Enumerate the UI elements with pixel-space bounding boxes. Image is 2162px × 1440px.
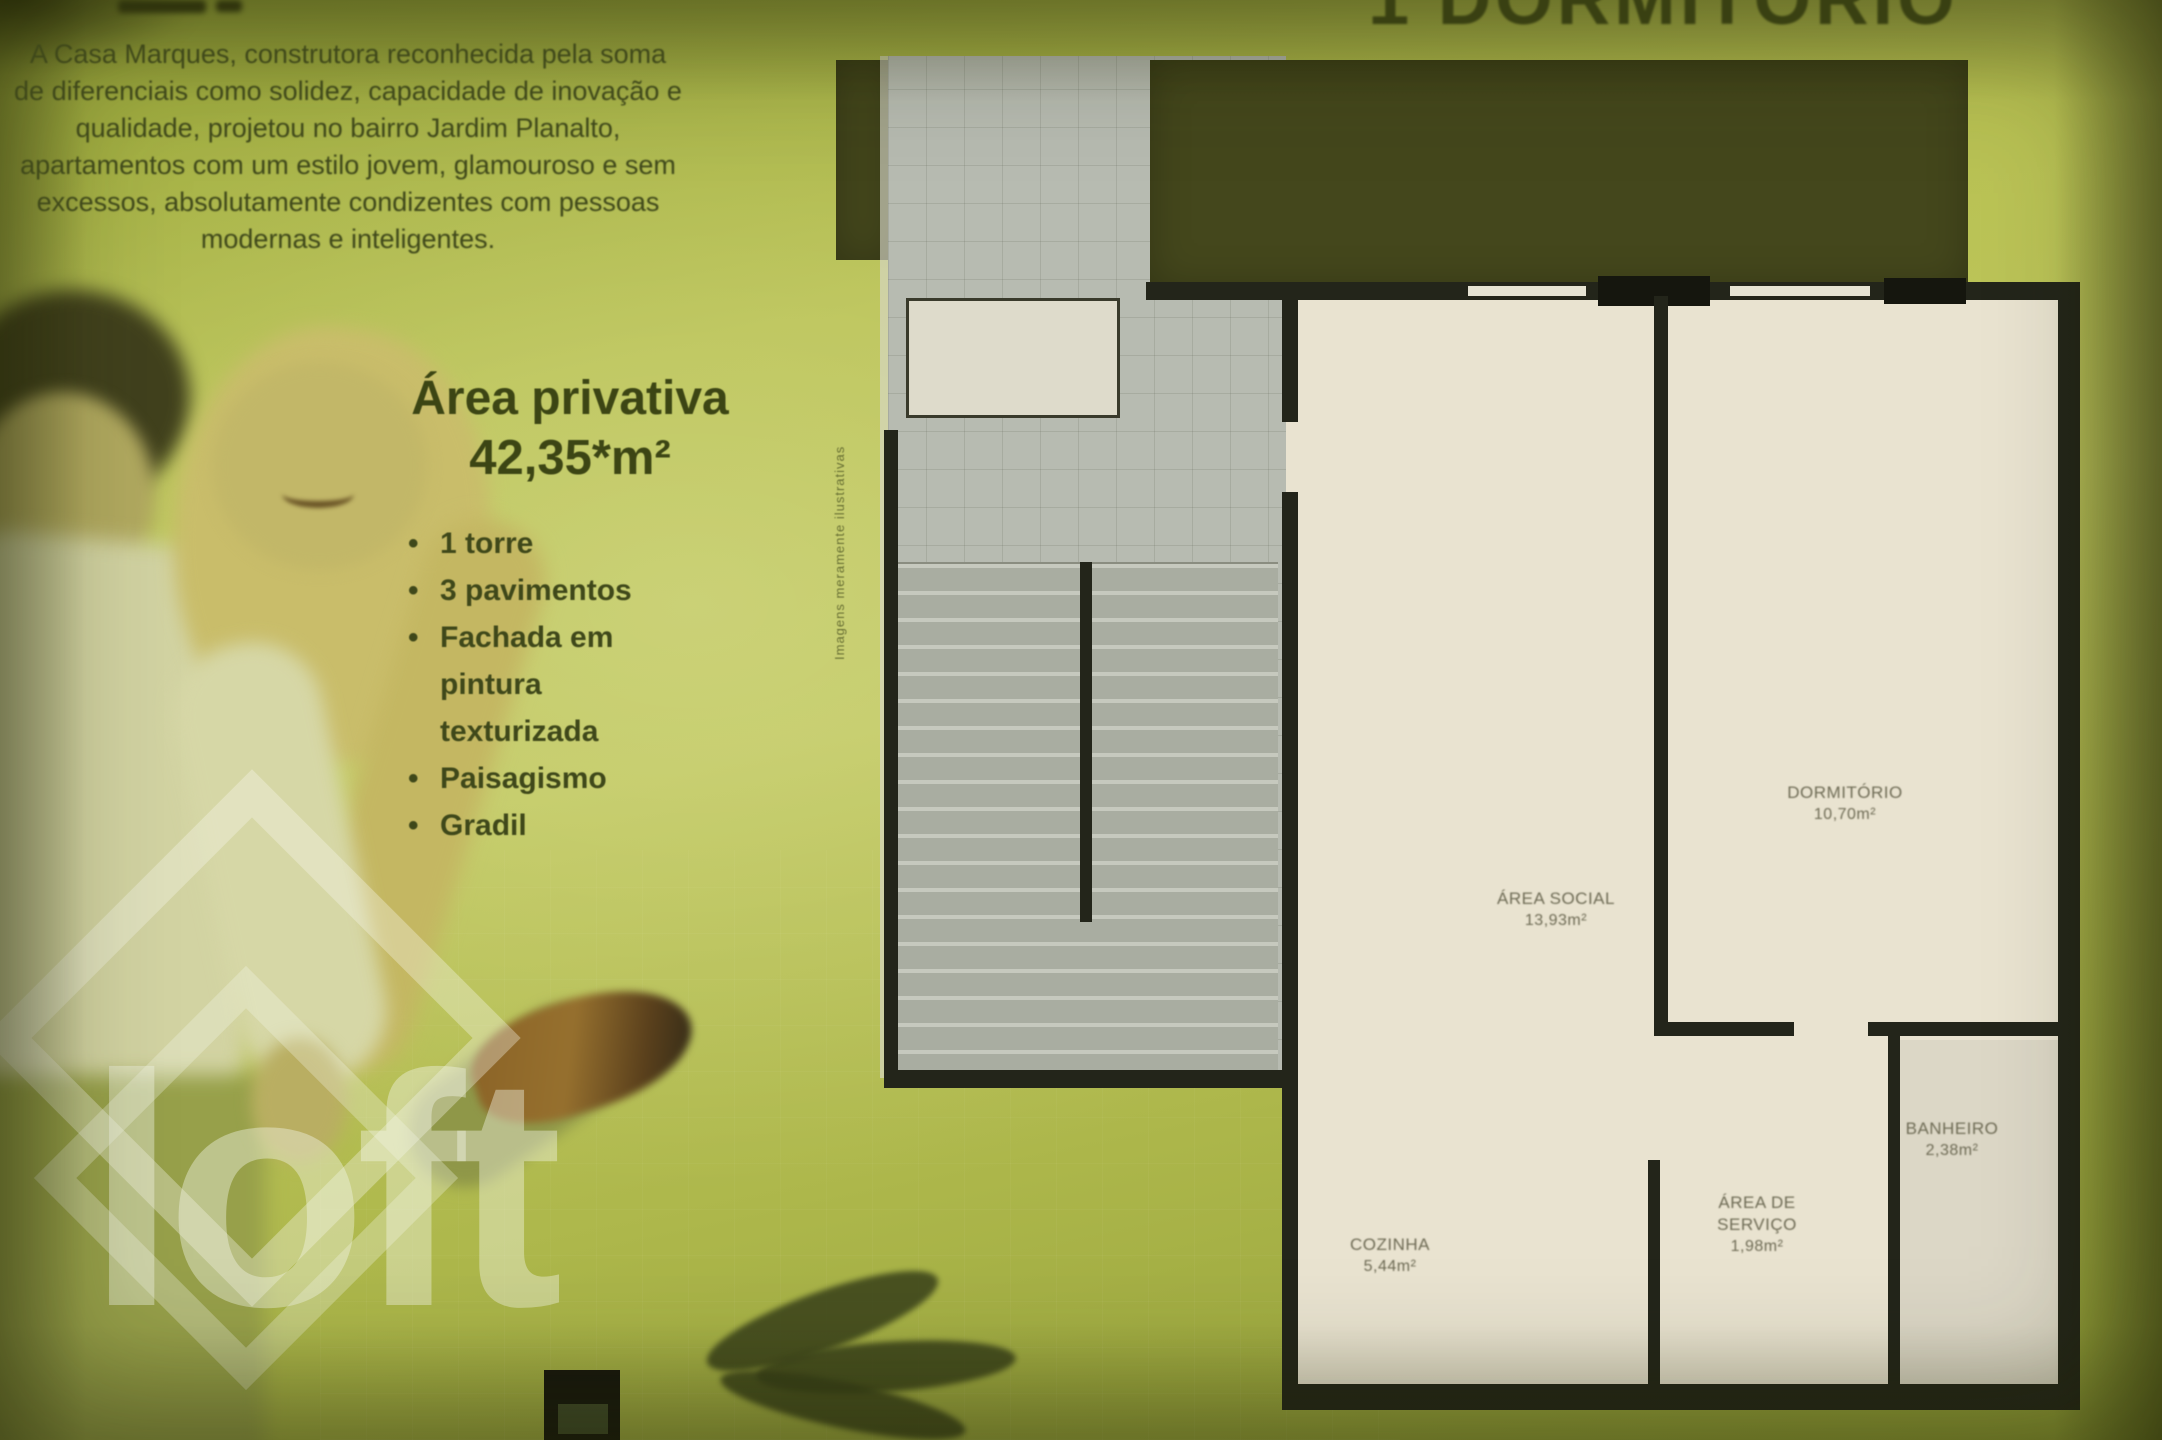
room-label-service: ÁREA DE SERVIÇO 1,98m² bbox=[1697, 1192, 1817, 1258]
wall-service-bathroom bbox=[1888, 1036, 1900, 1384]
feature-item: •Gradil bbox=[404, 802, 700, 849]
feature-item: •1 torre bbox=[404, 520, 700, 567]
intro-paragraph: A Casa Marques, construtora reconhecida … bbox=[14, 36, 682, 258]
page-title: 1 DORMITÓRIO bbox=[1368, 0, 2068, 41]
room-label-kitchen: COZINHA 5,44m² bbox=[1350, 1234, 1430, 1278]
private-area-block: Área privativa 42,35*m² bbox=[290, 370, 850, 488]
dark-plaque bbox=[544, 1370, 620, 1440]
bullet-icon: • bbox=[408, 802, 419, 849]
stair-left-wall bbox=[884, 430, 898, 1080]
wall-right bbox=[2058, 282, 2080, 1408]
wall-bedroom-bottom bbox=[1654, 1022, 1794, 1036]
bullet-icon: • bbox=[408, 520, 419, 567]
bathroom-floor bbox=[1898, 1040, 2070, 1390]
walkway-bottom-wall bbox=[884, 1070, 1286, 1088]
wall-left-upper bbox=[1282, 282, 1298, 422]
room-label-bedroom: DORMITÓRIO 10,70m² bbox=[1787, 782, 1903, 826]
wall-left-lower bbox=[1282, 492, 1298, 1384]
private-area-label: Área privativa bbox=[290, 370, 850, 428]
wall-kitchen-service bbox=[1648, 1160, 1660, 1384]
cropped-heading-mark bbox=[216, 0, 242, 12]
window bbox=[1468, 286, 1586, 296]
watermark-wordmark: loft bbox=[86, 1026, 551, 1356]
grass-band bbox=[1150, 60, 1968, 290]
feature-item: •Paisagismo bbox=[404, 755, 700, 802]
bullet-icon: • bbox=[408, 567, 419, 614]
window bbox=[1730, 286, 1870, 296]
stair-landing bbox=[906, 298, 1120, 418]
features-list: •1 torre •3 pavimentos •Fachada em pintu… bbox=[404, 520, 700, 849]
stair-divider-wall bbox=[1080, 562, 1092, 922]
room-label-bathroom: BANHEIRO 2,38m² bbox=[1906, 1118, 1999, 1162]
wall-bedroom-bottom bbox=[1868, 1022, 2062, 1036]
bullet-icon: • bbox=[408, 755, 419, 802]
cropped-heading-mark bbox=[118, 0, 206, 13]
feature-item: •Fachada em pintura texturizada bbox=[404, 614, 700, 755]
wall-bottom bbox=[1282, 1384, 2080, 1410]
plaque-inner bbox=[558, 1404, 608, 1434]
room-label-social: ÁREA SOCIAL 13,93m² bbox=[1497, 888, 1615, 932]
wall-pier bbox=[1884, 278, 1966, 304]
brochure-page: A Casa Marques, construtora reconhecida … bbox=[0, 0, 2162, 1440]
private-area-value: 42,35*m² bbox=[290, 428, 850, 488]
feature-item: •3 pavimentos bbox=[404, 567, 700, 614]
bullet-icon: • bbox=[408, 614, 419, 661]
wall-living-bedroom bbox=[1654, 296, 1668, 1022]
